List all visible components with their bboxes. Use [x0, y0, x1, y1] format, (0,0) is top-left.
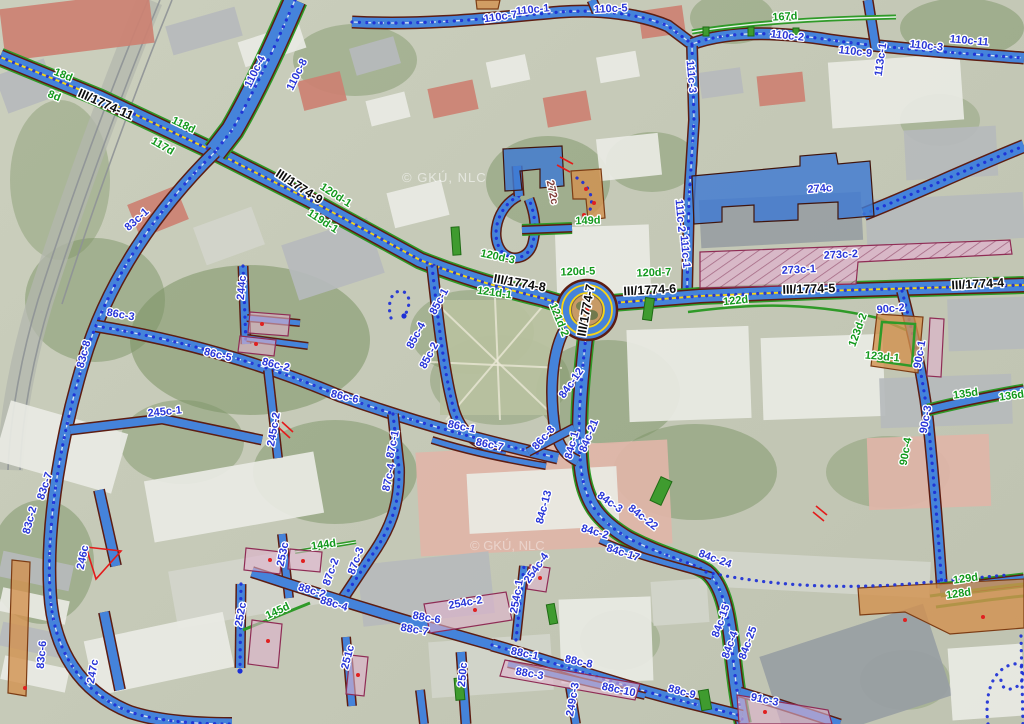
red-point [903, 618, 907, 622]
building [427, 80, 478, 119]
red-point [763, 710, 767, 714]
grass-verge [748, 27, 754, 36]
road-segment[interactable] [420, 690, 424, 724]
red-point [592, 201, 596, 205]
red-point [356, 673, 360, 677]
road-label-273c-1: 273c-1 [781, 263, 816, 277]
building [761, 334, 886, 420]
building [757, 72, 806, 107]
red-point [584, 187, 588, 191]
parking-area-orange[interactable] [476, 0, 500, 9]
parking-area-pink[interactable] [927, 318, 944, 377]
map-canvas: 110c-7110c-1110c-5110c-2110c-9110c-3110c… [0, 0, 1024, 724]
road-label-83c-6: 83c-6 [35, 640, 49, 669]
red-point [23, 686, 27, 690]
road-label-144d: 144d [310, 537, 337, 552]
building [651, 578, 710, 626]
road-label-110c-7: 110c-7 [483, 9, 518, 26]
node-dot [401, 313, 406, 318]
parking-area-pink[interactable] [288, 549, 322, 572]
road-label-120d-7: 120d-7 [636, 266, 671, 279]
building [947, 297, 1024, 352]
building [386, 180, 449, 228]
red-point [266, 639, 270, 643]
building [626, 326, 751, 422]
parking-area-orange[interactable] [8, 560, 30, 696]
red-point [473, 608, 477, 612]
road-label-273c-2: 273c-2 [823, 248, 858, 262]
road-segment[interactable] [522, 228, 572, 230]
map-viewport[interactable]: 110c-7110c-1110c-5110c-2110c-9110c-3110c… [0, 0, 1024, 724]
red-survey-mark [813, 506, 827, 521]
road-label-110c-2: 110c-2 [770, 28, 805, 43]
road-label-III/1774-4: III/1774-4 [951, 276, 1005, 293]
layer-wm: © GKÚ, NLC [470, 538, 545, 553]
green-edge-road[interactable] [688, 306, 906, 330]
survey-dotted-line [389, 291, 408, 318]
road-label-III/1774-5: III/1774-5 [782, 281, 835, 297]
road-label-120d-5: 120d-5 [560, 265, 595, 278]
grass-verge [703, 27, 709, 36]
building [828, 53, 964, 128]
road-label-111c-1: 111c-1 [678, 235, 693, 269]
building [543, 90, 592, 127]
building [596, 51, 640, 84]
road-label-120d-3: 120d-3 [479, 248, 516, 267]
building [698, 67, 743, 99]
building [193, 207, 265, 266]
road-label-111c-2: 111c-2 [673, 199, 688, 233]
road-label-87c-2: 87c-2 [321, 557, 342, 588]
road-label-244c: 244c [235, 275, 249, 300]
red-point [981, 615, 985, 619]
node-dot [237, 668, 242, 673]
road-label-III/1774-6: III/1774-6 [623, 282, 677, 299]
red-point [268, 558, 272, 562]
road-label-274c: 274c [807, 182, 832, 196]
road-label-136d: 136d [998, 388, 1024, 403]
parking-area-pink[interactable] [248, 620, 282, 668]
parking-area-pink[interactable] [248, 312, 290, 336]
road-label-111c-3: 111c-3 [684, 60, 699, 94]
road-label-250c: 250c [456, 662, 470, 687]
road-label-110c-5: 110c-5 [594, 2, 628, 16]
red-point [260, 322, 264, 326]
road-label-167d: 167d [772, 10, 798, 23]
building [486, 54, 531, 88]
copyright-watermark: © GKÚ, NLC [470, 538, 545, 553]
road-label-90c-2: 90c-2 [876, 302, 905, 316]
building [596, 133, 662, 181]
road-label-149d: 149d [575, 215, 600, 228]
paved-area-blue[interactable] [692, 153, 874, 224]
grass-verge [546, 603, 557, 624]
red-point [301, 559, 305, 563]
grass-verge [451, 227, 461, 255]
parking-area-pink[interactable] [238, 336, 276, 356]
red-point [538, 576, 542, 580]
building [365, 92, 410, 127]
red-point [254, 342, 258, 346]
building [165, 7, 242, 56]
